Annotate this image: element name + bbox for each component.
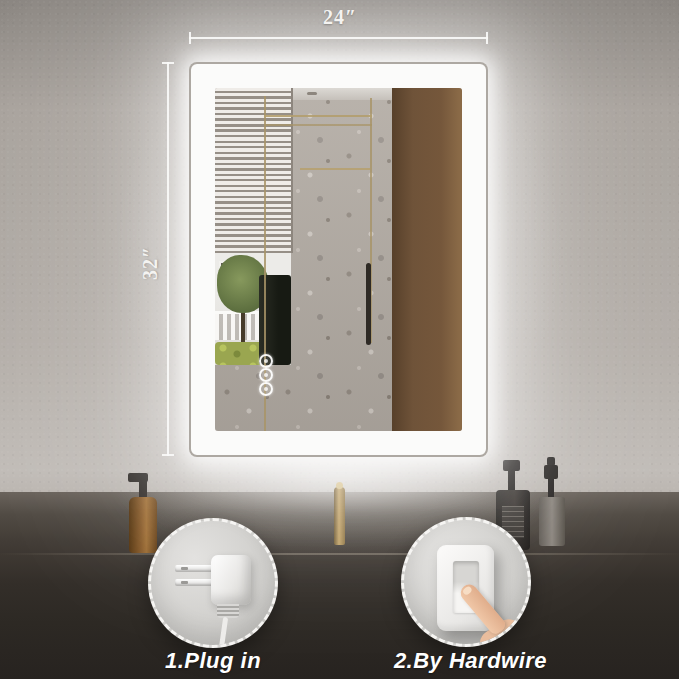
hardwire-callout-badge bbox=[401, 517, 531, 647]
width-dimension-line bbox=[189, 37, 488, 39]
gray-bottle-pump bbox=[548, 478, 554, 498]
power-plug-icon bbox=[211, 555, 251, 605]
height-dimension-line bbox=[167, 62, 169, 456]
power-plug-cord bbox=[219, 617, 228, 648]
soap-dispenser-pump bbox=[139, 481, 147, 498]
touch-control-button[interactable] bbox=[259, 354, 273, 368]
power-plug-icon bbox=[175, 565, 215, 572]
touch-control-button[interactable] bbox=[259, 368, 273, 382]
gold-faucet bbox=[334, 487, 345, 545]
product-image: 24″ 32″ 1.Plug in 2.By Hardwire bbox=[0, 0, 679, 679]
window-view-reflection bbox=[215, 253, 291, 365]
amber-soap-bottle bbox=[129, 497, 157, 553]
led-mirror bbox=[189, 62, 488, 457]
gray-bottle-nozzle bbox=[544, 465, 558, 479]
plug-callout-label: 1.Plug in bbox=[128, 648, 298, 678]
plug-callout-badge bbox=[148, 518, 278, 648]
garden-bush bbox=[215, 342, 263, 365]
mirror-reflection bbox=[215, 88, 462, 431]
height-dimension-label: 32″ bbox=[137, 233, 163, 293]
soap-dispenser-nozzle bbox=[128, 473, 148, 482]
power-plug-icon bbox=[175, 579, 215, 586]
wood-panel-reflection bbox=[392, 88, 462, 431]
hardwire-callout-label: 2.By Hardwire bbox=[378, 648, 563, 678]
gold-frame-bar bbox=[264, 115, 372, 117]
door-handle-reflection bbox=[366, 263, 371, 345]
gold-faucet-tip bbox=[336, 482, 343, 489]
gray-soap-bottle bbox=[539, 497, 565, 546]
tree-trunk bbox=[241, 309, 245, 343]
touch-control-button[interactable] bbox=[259, 382, 273, 396]
dark-bottle-pump bbox=[508, 470, 515, 491]
window-blinds-reflection bbox=[215, 88, 293, 253]
width-dimension-label: 24″ bbox=[298, 6, 382, 29]
gold-frame-bar bbox=[264, 124, 372, 126]
power-plug-cord-strain bbox=[217, 604, 239, 618]
counter-front bbox=[0, 553, 679, 679]
gold-shelf bbox=[300, 168, 370, 170]
dark-bottle-nozzle bbox=[503, 460, 520, 471]
